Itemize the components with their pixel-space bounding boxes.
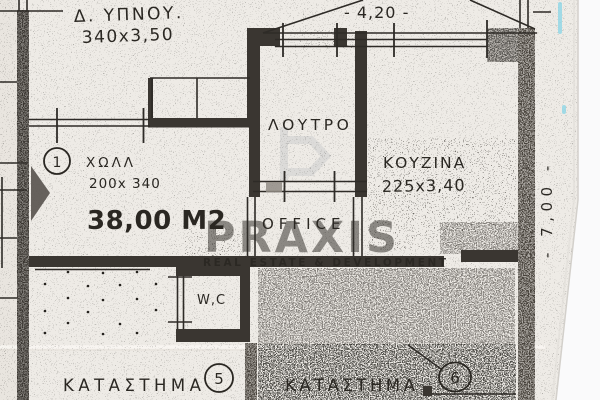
hall-label: ΧΩΛΛ [86, 155, 136, 171]
shop5-number: 5 [214, 370, 224, 388]
watermark-tagline: REAL ESTATE & DEVELOPMENT [203, 257, 449, 269]
bathroom-label: ΛΟΥΤΡΟ [268, 116, 352, 134]
shop6-number: 6 [450, 369, 460, 387]
scan-noise [0, 0, 600, 400]
bedroom-label: Δ. ΥΠΝΟΥ. [73, 3, 184, 27]
right-dimension-label: - 7,00 - [538, 160, 556, 258]
kitchen-dimensions: 225x3,40 [382, 176, 466, 196]
hall-area: 38,00 Μ2 [87, 206, 226, 236]
shop5-label: ΚΑΤΑΣΤΗΜΑ [63, 376, 205, 395]
shop6-label: ΚΑΤΑΣΤΗΜΑ [285, 376, 418, 395]
scanned-floor-plan-page: PRAXIS REAL ESTATE & DEVELOPME [0, 0, 600, 400]
kitchen-label: ΚΟΥΖΙΝΑ [383, 154, 466, 172]
top-dimension-label: - 4,20 - [344, 3, 409, 22]
bedroom-dimensions: 340x3,50 [81, 25, 174, 48]
hall-dimensions: 200x 340 [89, 176, 161, 192]
office-label: OFFICE [262, 215, 345, 233]
hall-number: 1 [53, 155, 62, 171]
wc-label: W,C [197, 293, 226, 308]
bathroom-door-mark [266, 182, 282, 192]
floor-plan-drawing: PRAXIS REAL ESTATE & DEVELOPME [0, 0, 600, 400]
